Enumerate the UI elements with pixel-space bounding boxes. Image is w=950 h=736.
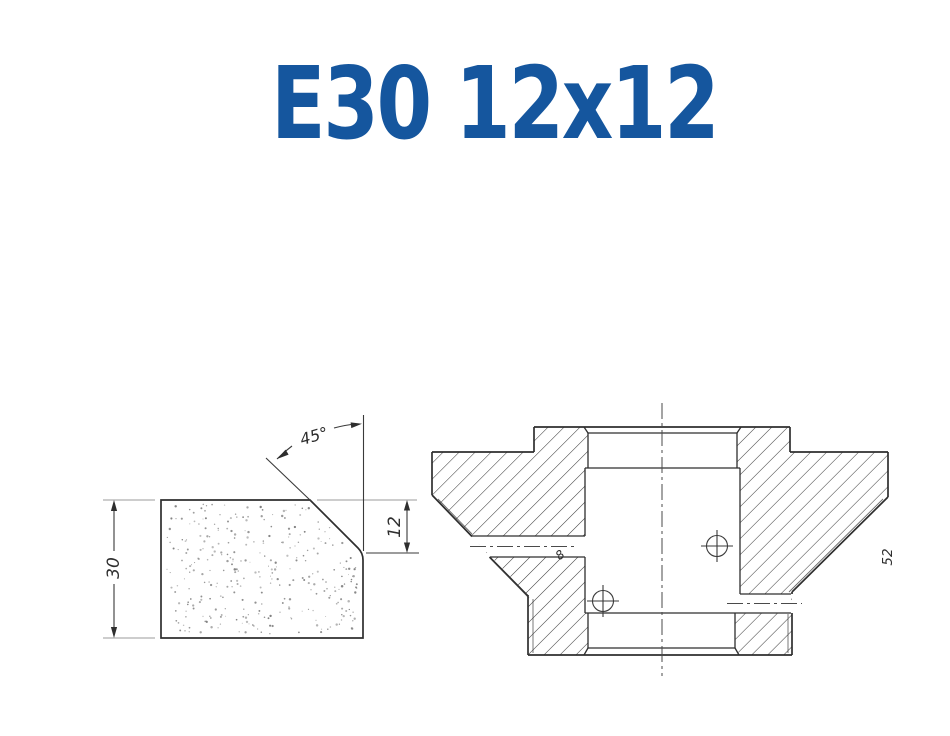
extension-lines xyxy=(103,415,419,638)
wheel-body-hatch xyxy=(432,427,888,655)
height-dimension: 30 xyxy=(104,500,124,638)
drawing-page: E30 12x12 xyxy=(0,0,950,736)
chamfer-dimension: 12 xyxy=(385,500,410,553)
segment-outline xyxy=(161,500,363,638)
angle-dimension: 45° xyxy=(277,422,362,459)
stipple-texture xyxy=(166,504,357,635)
hole-circle-right xyxy=(701,530,733,562)
section-view: 8 52 xyxy=(432,403,896,676)
side-label: 52 xyxy=(880,548,896,565)
profile-view: 30 12 45° xyxy=(103,415,419,638)
hole-circle-left xyxy=(587,585,619,617)
technical-drawing-canvas: 30 12 45° xyxy=(0,0,950,736)
chamfer-dim-label: 12 xyxy=(385,516,405,538)
height-dim-label: 30 xyxy=(104,557,124,579)
angle-dim-label: 45° xyxy=(298,423,330,449)
